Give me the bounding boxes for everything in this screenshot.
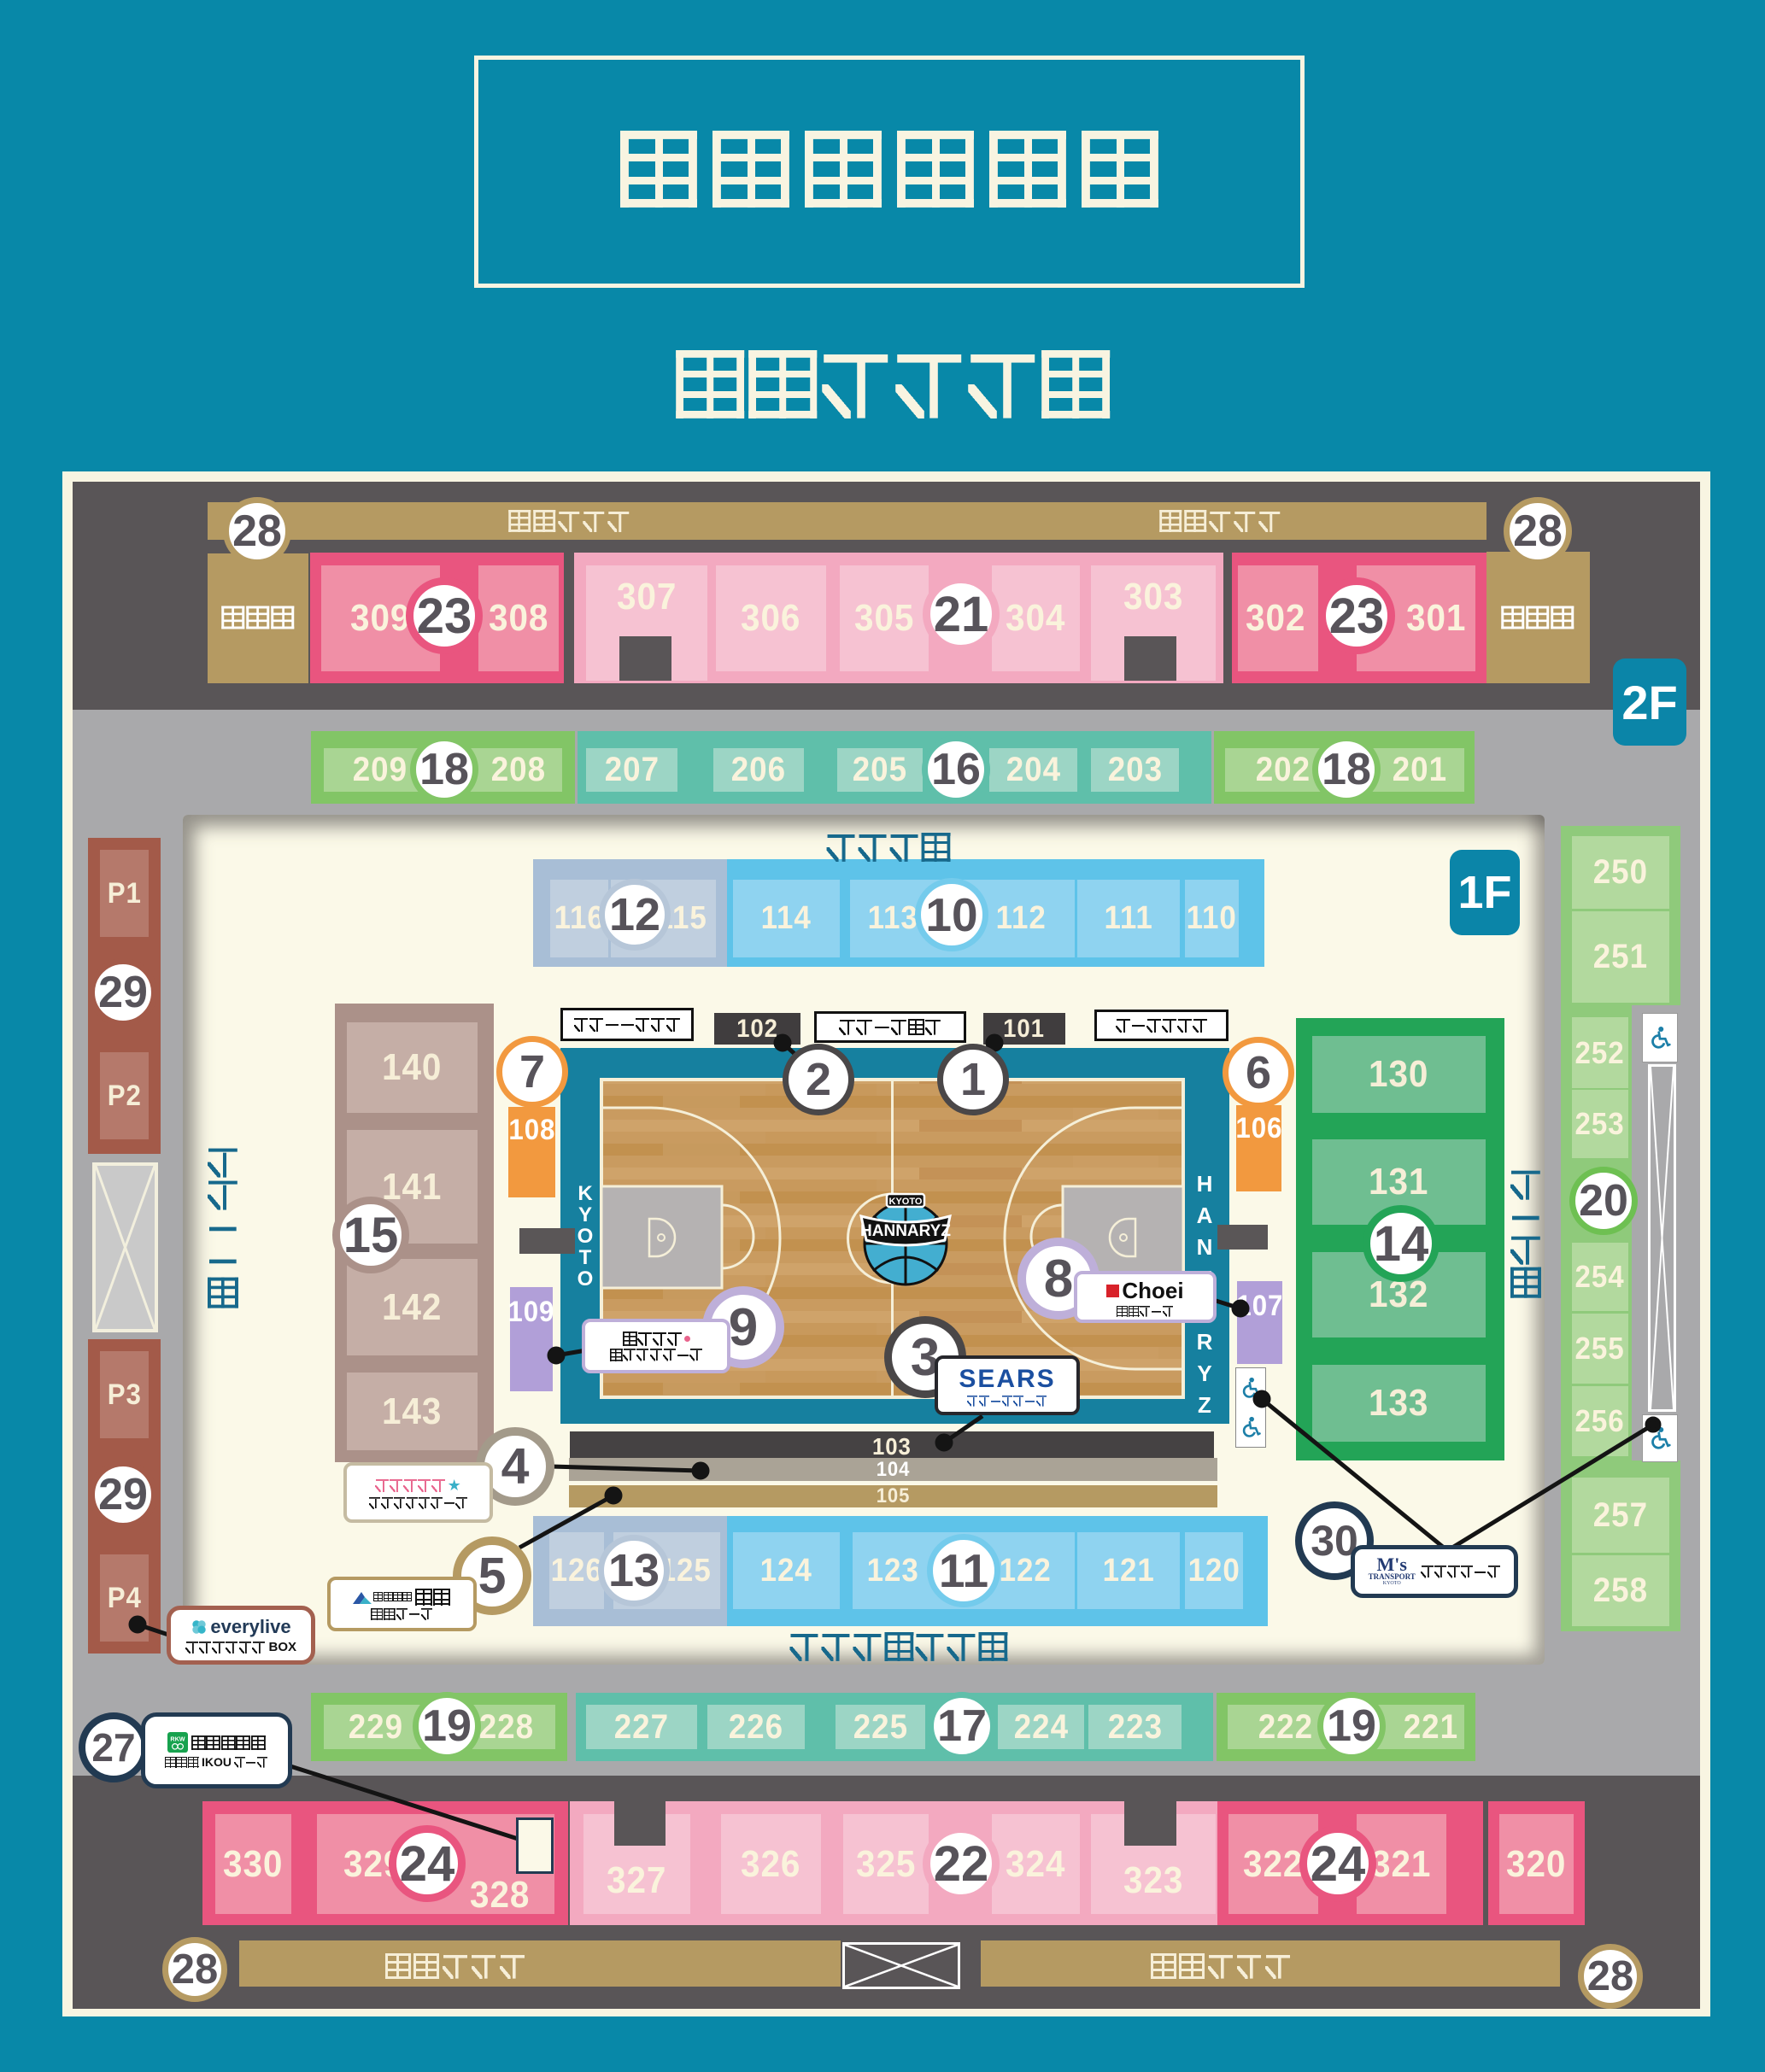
svg-text:RKW: RKW [171,1735,185,1742]
